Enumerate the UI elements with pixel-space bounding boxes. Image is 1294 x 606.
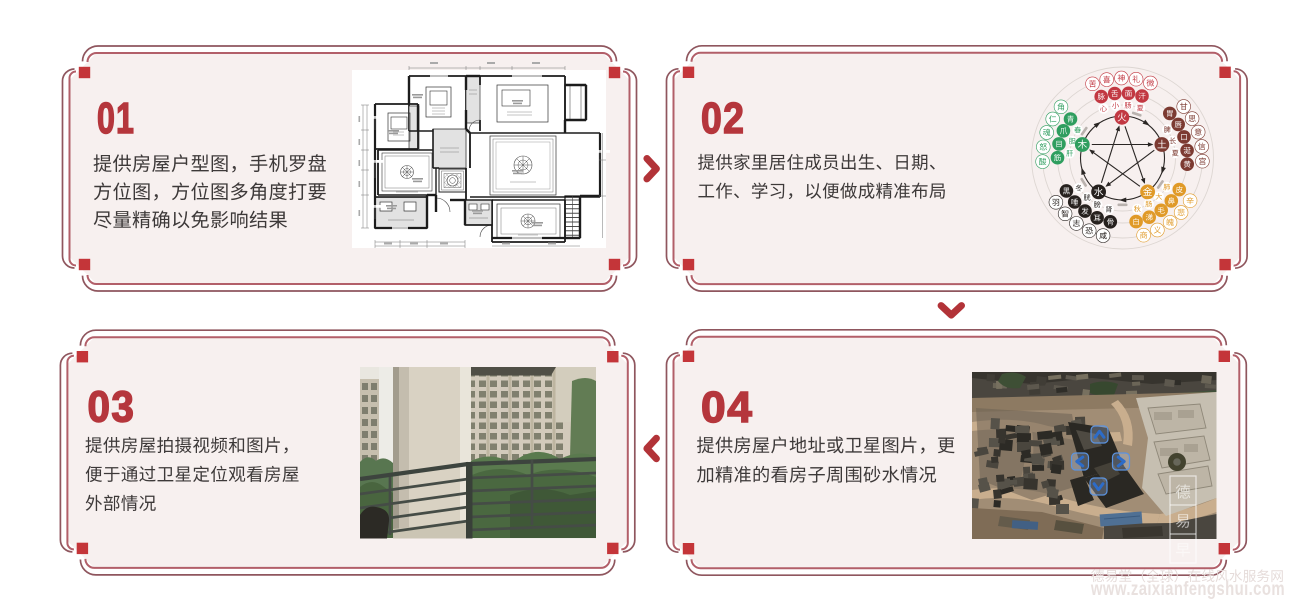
svg-text:01: 01	[97, 94, 135, 143]
svg-text:02: 02	[701, 93, 745, 142]
svg-text:www.zaixianfengshui.com: www.zaixianfengshui.com	[1090, 578, 1285, 599]
svg-text:04: 04	[701, 383, 753, 432]
svg-text:03: 03	[88, 382, 136, 431]
